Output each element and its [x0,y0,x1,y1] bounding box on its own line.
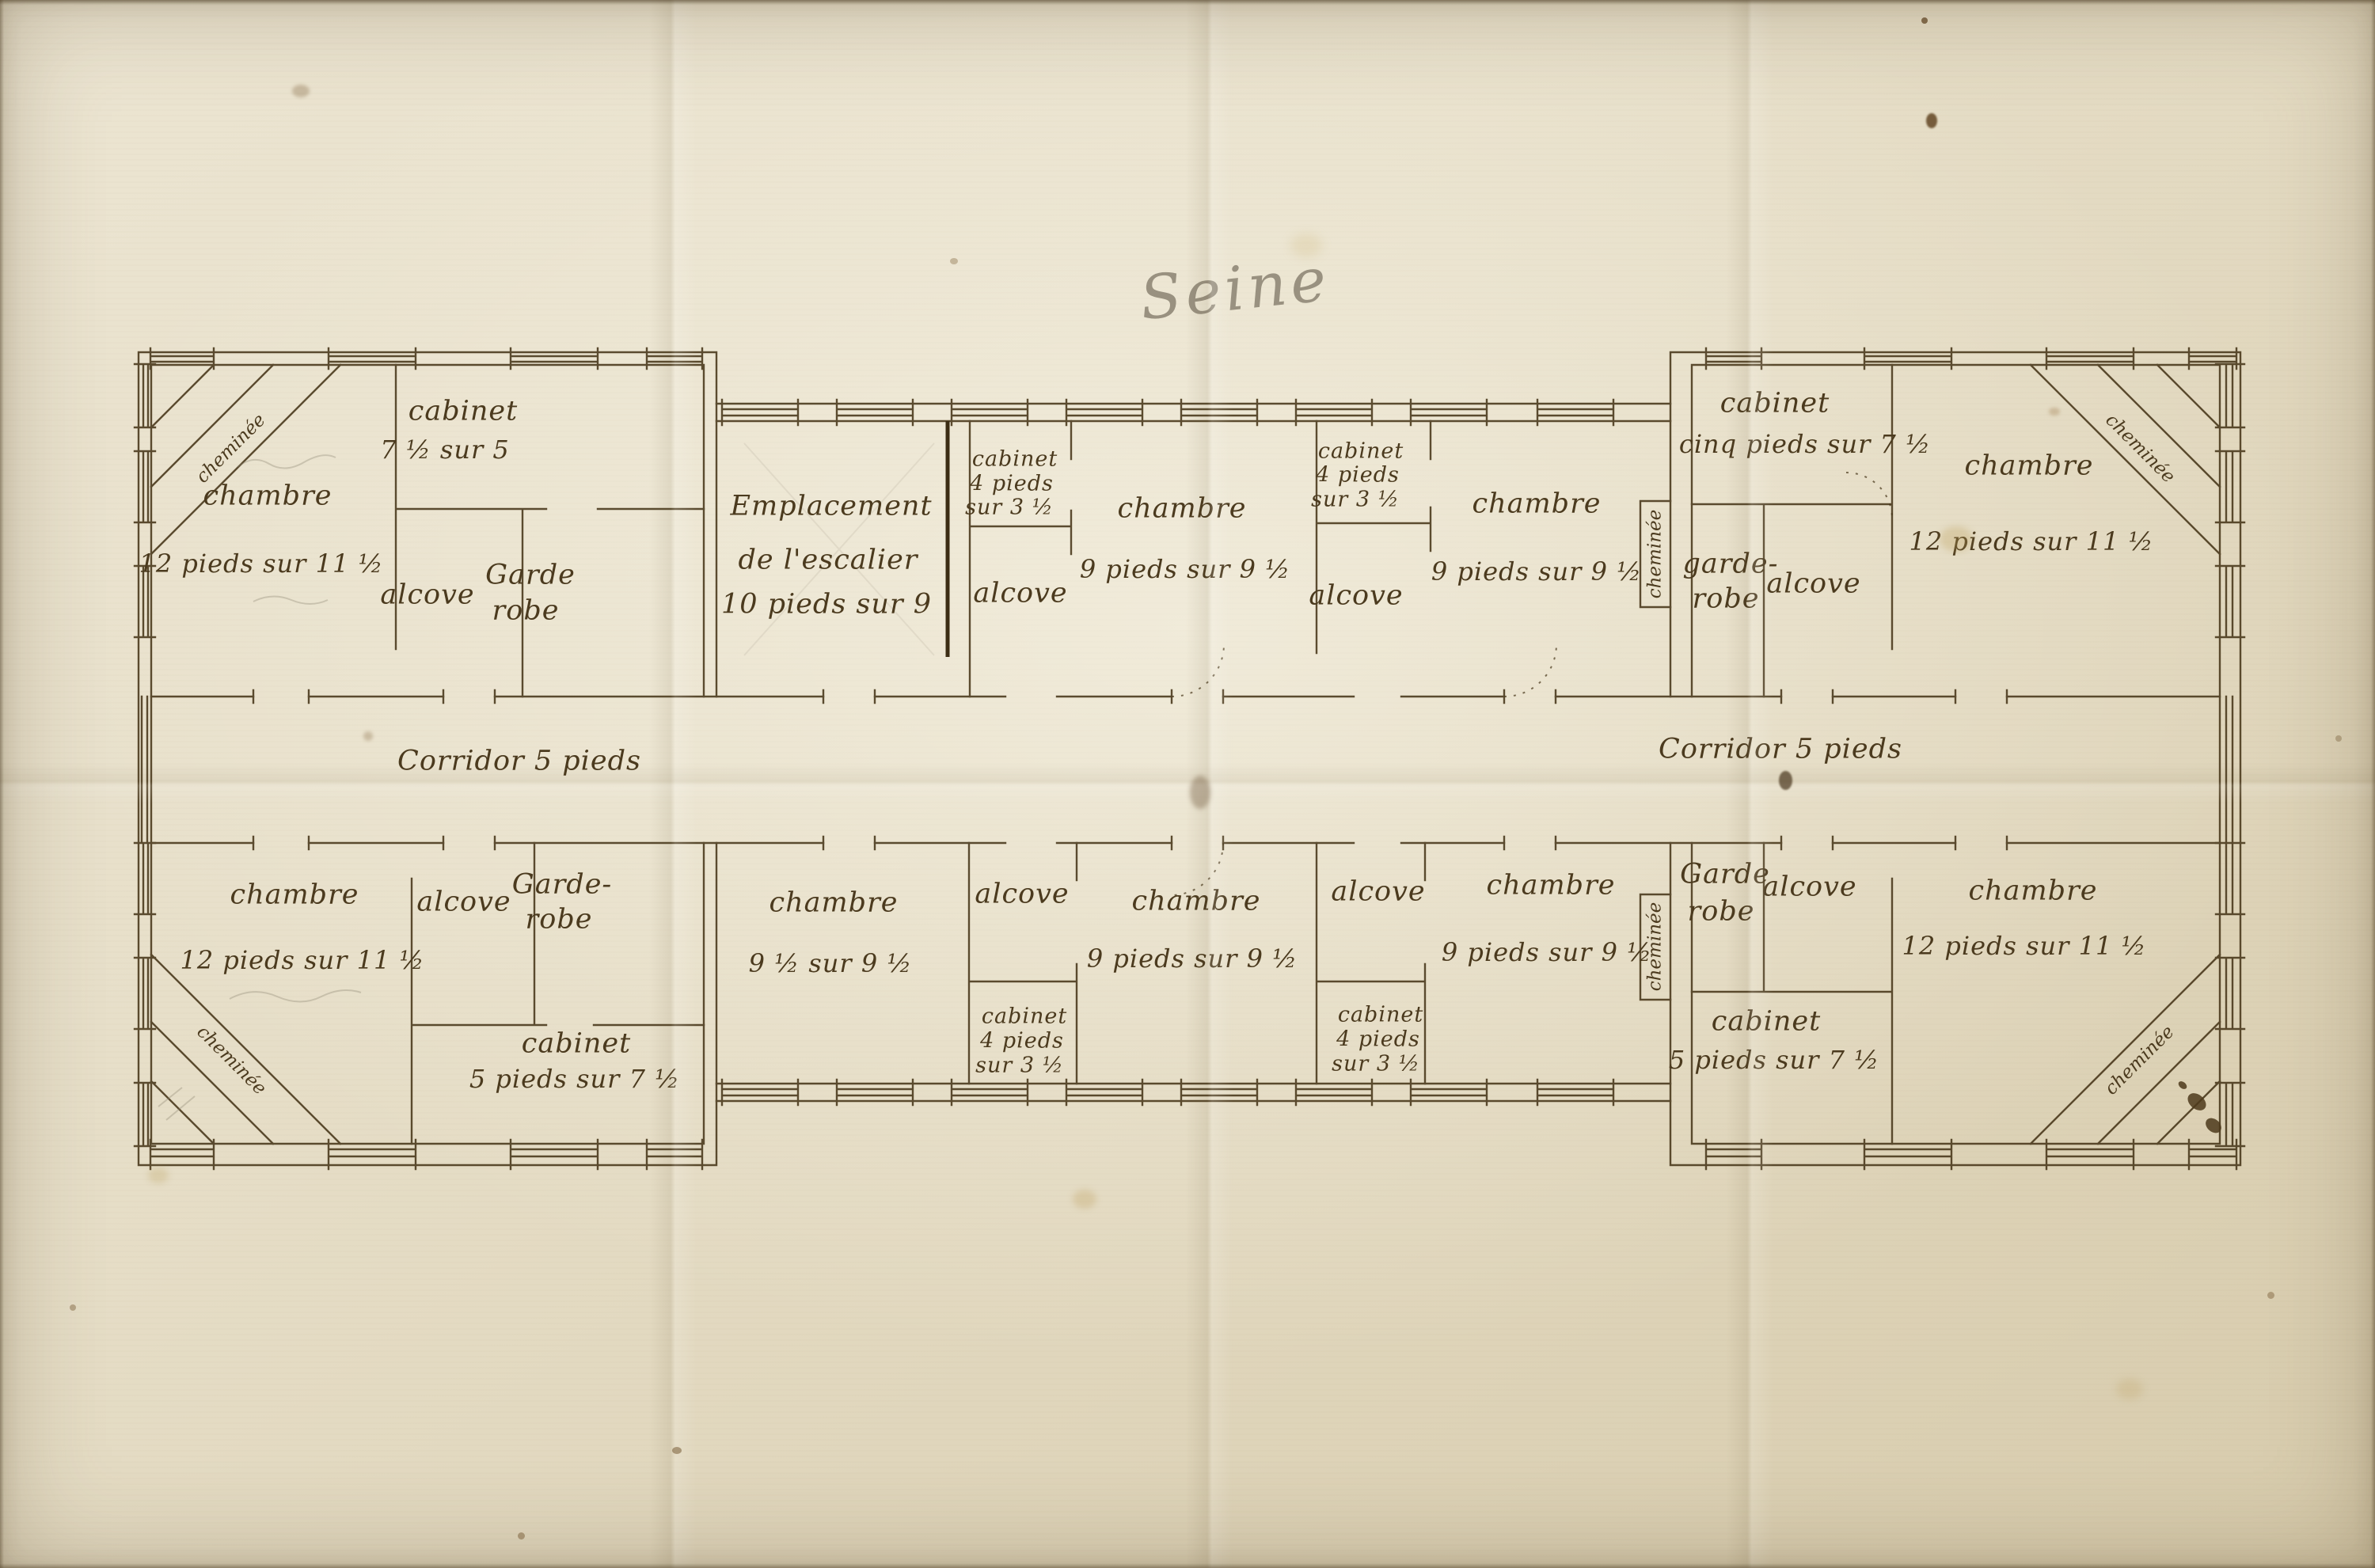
room-label-tr-cabinet: cabinet [1720,390,1830,418]
room-label-bot-cabinet2-3: sur 3 ½ [1332,1054,1420,1075]
room-label-bot-cabinet2-1: cabinet [1338,1004,1423,1026]
corridor-label-left: Corridor 5 pieds [397,748,641,776]
room-label-br-garderobe-2: robe [1688,898,1755,926]
room-label-tl-chambre: chambre [203,483,332,511]
room-label-bot-chambre2: chambre [1131,888,1260,916]
room-label-bot-cabinet1-2: 4 pieds [980,1031,1064,1052]
room-dims-bot-chambre1: 9 ½ sur 9 ½ [749,951,913,976]
room-label-top-chambre2: chambre [1472,491,1601,518]
room-dims-tl-cabinet: 7 ½ sur 5 [380,437,510,462]
floor-plan-drawing [0,0,2375,1568]
room-label-top-cabinet1-3: sur 3 ½ [965,497,1054,518]
room-label-top-cabinet1-2: 4 pieds [970,473,1054,495]
room-label-bl-garderobe-2: robe [526,906,593,934]
room-label-bot-chambre3: chambre [1486,872,1615,900]
paper-edge-left [0,0,4,1568]
room-label-top-cabinet2-2: 4 pieds [1316,465,1400,486]
room-label-tl-garderobe-1: Garde [485,562,576,590]
room-dims-top-chambre1: 9 pieds sur 9 ½ [1080,556,1290,582]
room-label-br-cabinet: cabinet [1712,1008,1821,1036]
room-dims-bot-chambre3: 9 pieds sur 9 ½ [1442,940,1652,965]
room-label-top-alcove2: alcove [1309,583,1403,610]
door-swing-arcs [1171,473,1892,895]
paper-edge-right [2371,0,2375,1568]
corner-chimney-top-left [151,365,340,554]
room-label-bot-cabinet2-2: 4 pieds [1336,1029,1420,1050]
scanned-floor-plan-sheet: Seine cabinet 7 ½ sur 5 chambre 12 pieds… [0,0,2375,1568]
chimney-label-wing-bottom: cheminée [1647,902,1665,992]
room-label-bl-chambre: chambre [230,882,359,909]
room-label-tr-chambre: chambre [1964,453,2093,480]
room-label-br-chambre: chambre [1968,878,2097,905]
paper-edge-bottom [0,1563,2375,1568]
room-dims-tr-cabinet: cinq pieds sur 7 ½ [1679,431,1931,457]
room-label-tr-alcove: alcove [1766,571,1860,598]
room-label-top-cabinet1-1: cabinet [972,449,1058,470]
room-dims-top-chambre2: 9 pieds sur 9 ½ [1431,559,1642,584]
corridor-label-right: Corridor 5 pieds [1659,736,1902,764]
room-label-bl-garderobe-1: Garde- [512,871,613,899]
room-label-stair-2: de l'escalier [738,547,918,575]
room-label-bot-alcove1: alcove [975,881,1069,909]
room-label-stair-3: 10 pieds sur 9 [721,591,932,619]
corner-chimney-bottom-right [2031,955,2220,1144]
room-label-bot-cabinet1-1: cabinet [982,1006,1067,1027]
room-label-tr-garderobe-2: robe [1693,586,1760,613]
room-label-tl-alcove: alcove [380,582,474,609]
room-label-stair-1: Emplacement [730,493,932,521]
ink-blots [2177,1080,2225,1136]
room-dims-bot-chambre2: 9 pieds sur 9 ½ [1087,946,1298,971]
room-label-br-alcove: alcove [1762,874,1856,902]
room-label-bot-alcove2: alcove [1331,879,1425,906]
room-label-bl-alcove: alcove [416,889,511,917]
room-label-bot-chambre1: chambre [769,890,898,917]
room-dims-tr-chambre: 12 pieds sur 11 ½ [1909,529,2153,554]
room-label-bot-cabinet1-3: sur 3 ½ [975,1055,1064,1076]
room-label-top-cabinet2-1: cabinet [1318,441,1404,462]
chimney-label-wing-top: cheminée [1647,510,1665,599]
room-label-top-chambre1: chambre [1117,495,1246,523]
room-label-top-cabinet2-3: sur 3 ½ [1311,489,1400,511]
room-label-tr-garderobe-1: garde- [1683,551,1779,579]
room-dims-br-chambre: 12 pieds sur 11 ½ [1902,933,2146,959]
corner-chimney-bottom-left [151,955,340,1144]
room-label-br-garderobe-1: Garde [1680,861,1770,889]
room-dims-br-cabinet: 5 pieds sur 7 ½ [1669,1047,1879,1073]
room-label-tl-cabinet: cabinet [408,398,518,426]
room-label-bl-cabinet: cabinet [522,1031,631,1058]
room-dims-tl-chambre: 12 pieds sur 11 ½ [139,551,383,576]
paper-edge-top [0,0,2375,5]
room-label-top-alcove1: alcove [973,580,1067,608]
room-dims-bl-chambre: 12 pieds sur 11 ½ [180,947,424,973]
room-label-tl-garderobe-2: robe [492,598,560,625]
room-dims-bl-cabinet: 5 pieds sur 7 ½ [469,1066,680,1092]
